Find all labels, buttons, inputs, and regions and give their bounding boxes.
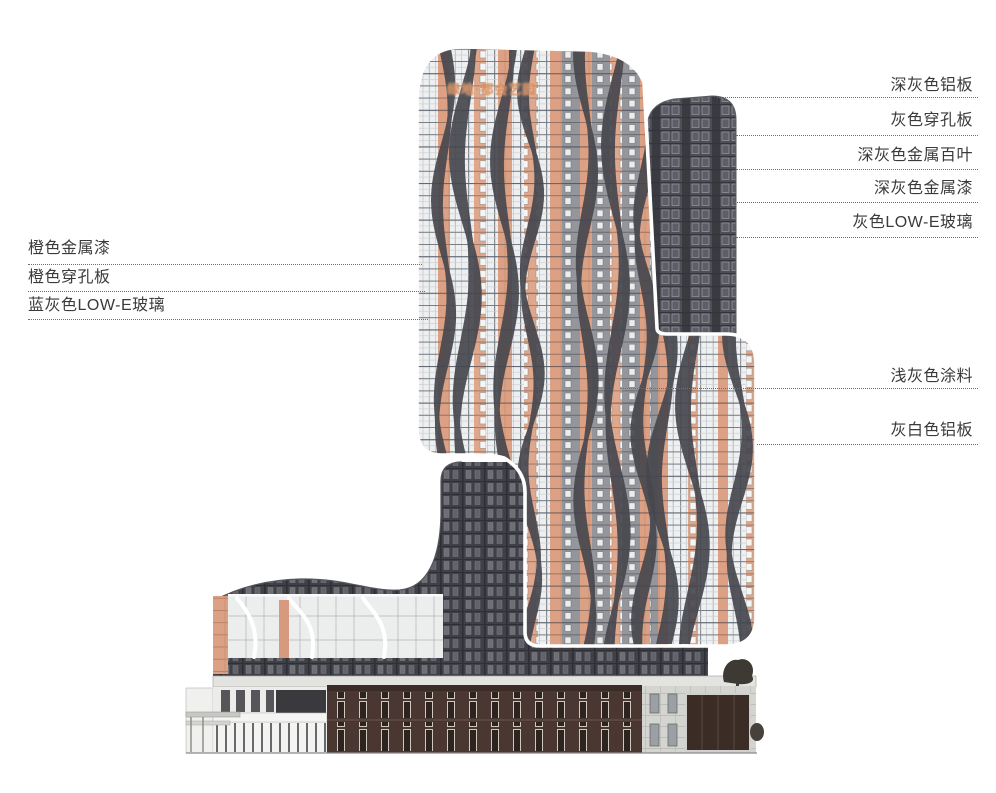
leader-line-light-gray-paint <box>620 388 978 389</box>
ground-stone-section <box>642 686 756 753</box>
label-dark-gray-metal-paint: 深灰色金属漆 <box>874 181 973 197</box>
leader-line-blue-gray-low-e-glass <box>28 319 428 320</box>
ground-brown-section <box>327 685 642 753</box>
label-dark-gray-metal-louver: 深灰色金属百叶 <box>857 148 973 164</box>
label-light-gray-paint: 浅灰色涂料 <box>890 369 973 385</box>
leader-line-orange-metal-paint <box>28 264 422 265</box>
leader-line-dark-gray-metal-paint <box>735 202 978 203</box>
label-dark-gray-aluminum-panel: 深灰色铝板 <box>890 78 973 94</box>
leader-line-gray-white-aluminum-panel <box>757 444 978 445</box>
label-blue-gray-low-e-glass: 蓝灰色LOW-E玻璃 <box>28 298 165 314</box>
tree-silhouette <box>723 659 753 686</box>
building-elevation-illustration <box>0 0 996 793</box>
leader-line-gray-perforated-panel <box>736 135 978 136</box>
leader-line-dark-gray-aluminum-panel <box>717 97 978 98</box>
label-gray-low-e-glass: 灰色LOW-E玻璃 <box>852 215 973 231</box>
rear-dark-volume <box>648 96 736 333</box>
leader-line-gray-low-e-glass <box>736 237 978 238</box>
leader-line-orange-perforated-panel <box>28 291 425 292</box>
leader-line-dark-gray-metal-louver <box>736 169 978 170</box>
label-orange-metal-paint: 橙色金属漆 <box>28 241 111 257</box>
label-orange-perforated-panel: 橙色穿孔板 <box>28 270 111 286</box>
label-gray-white-aluminum-panel: 灰白色铝板 <box>890 423 973 439</box>
ground-left-section <box>186 687 327 753</box>
elevation-diagram: 绿地·都会艺园 橙色金属漆 橙色穿孔板 蓝灰色LOW-E玻璃 深灰色铝板 灰色穿… <box>0 0 996 793</box>
watermark-text: 绿地·都会艺园 <box>447 79 536 98</box>
label-gray-perforated-panel: 灰色穿孔板 <box>890 113 973 129</box>
shrub-silhouette <box>750 723 764 741</box>
